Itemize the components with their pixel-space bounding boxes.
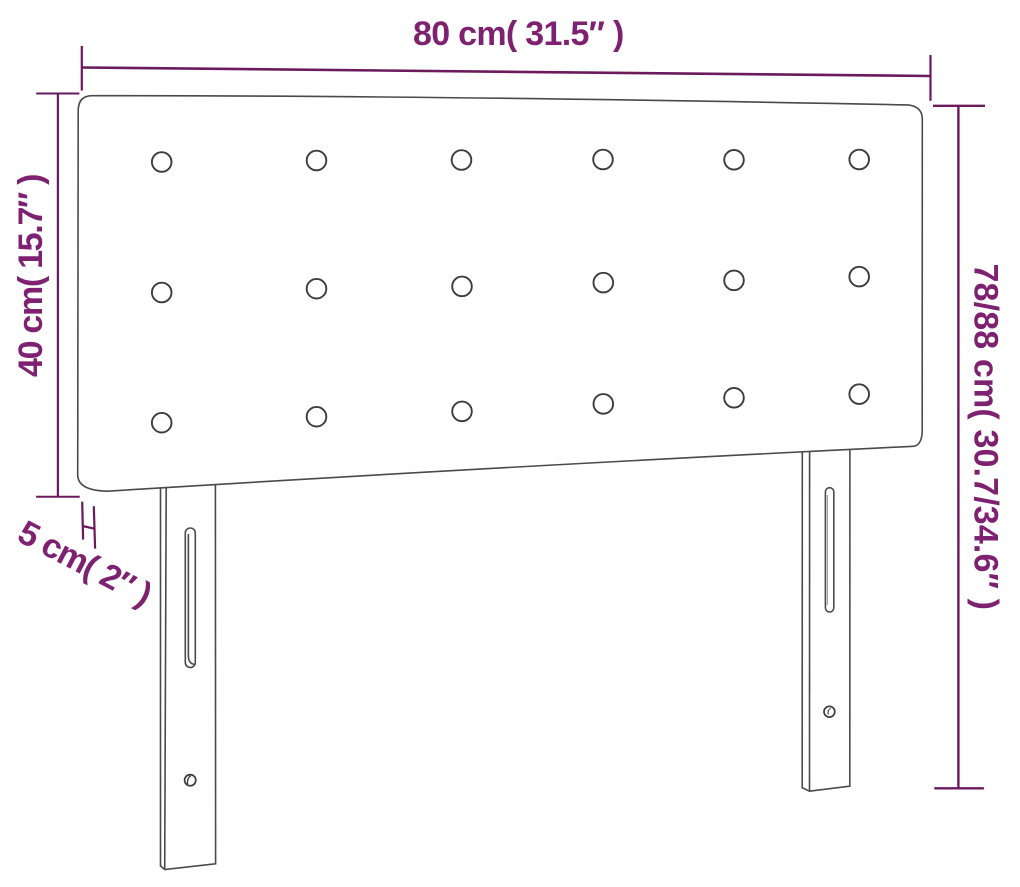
svg-text:5 cm( 2″ ): 5 cm( 2″ ): [12, 513, 157, 613]
svg-text:80 cm( 31.5″ ): 80 cm( 31.5″ ): [413, 15, 624, 53]
svg-text:78/88 cm( 30.7/34.6″ ): 78/88 cm( 30.7/34.6″ ): [967, 264, 1005, 611]
svg-text:40 cm( 15.7″ ): 40 cm( 15.7″ ): [12, 175, 50, 377]
